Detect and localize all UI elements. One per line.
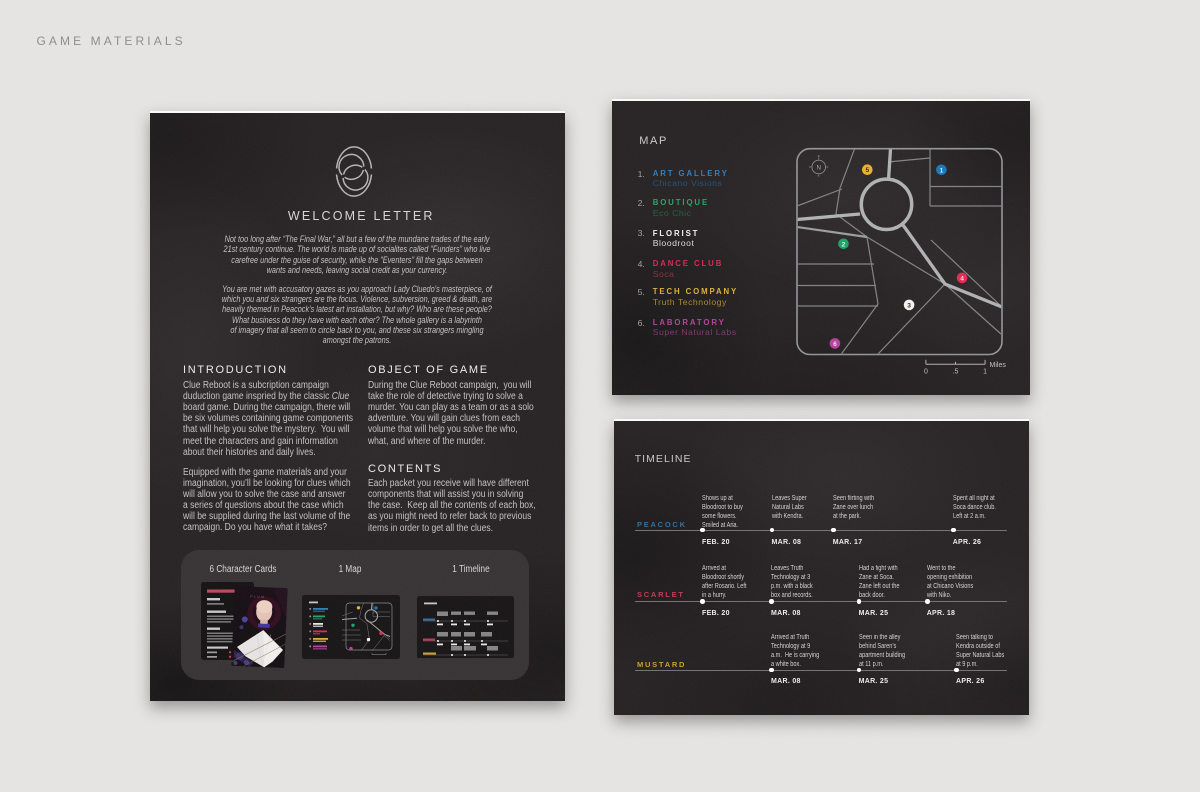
svg-text:1: 1 xyxy=(940,167,944,174)
svg-text:N: N xyxy=(816,164,820,171)
svg-text:1: 1 xyxy=(983,369,987,376)
svg-text:5: 5 xyxy=(865,167,869,174)
svg-text:3: 3 xyxy=(907,302,911,309)
svg-text:Miles: Miles xyxy=(990,362,1007,369)
svg-text:.5: .5 xyxy=(953,369,959,376)
svg-text:PLUM: PLUM xyxy=(250,594,265,599)
svg-text:0: 0 xyxy=(924,369,928,376)
svg-text:6: 6 xyxy=(833,341,837,348)
svg-text:4: 4 xyxy=(960,275,964,282)
svg-text:2: 2 xyxy=(842,241,846,248)
